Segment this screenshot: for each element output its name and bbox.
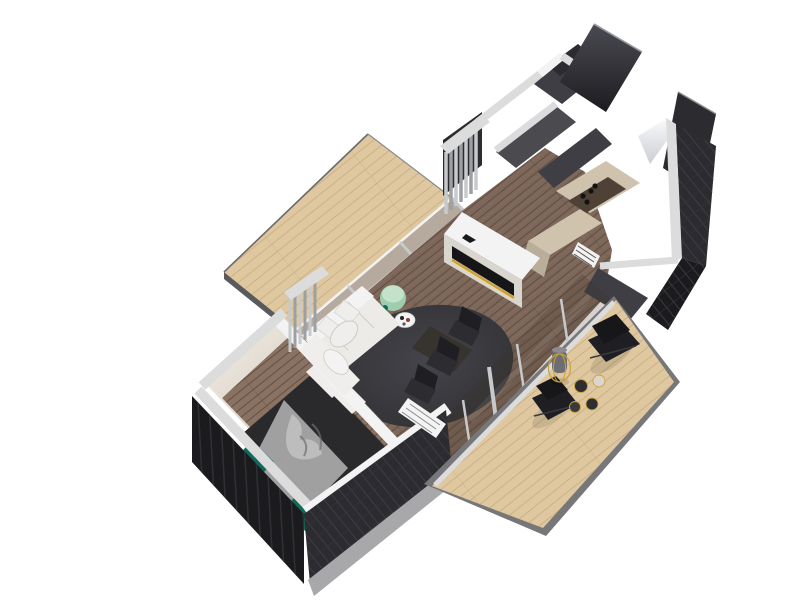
side-table <box>593 375 605 387</box>
wall-top-band <box>600 260 678 266</box>
wall-top-band <box>478 74 540 122</box>
floorplan-render: Isometric 3D render of a modular one-bed… <box>0 0 800 600</box>
side-table <box>570 402 581 413</box>
side-table <box>575 380 588 393</box>
burner <box>584 199 589 204</box>
wall-fin-a <box>560 24 642 112</box>
floorplan-svg: Isometric 3D render of a modular one-bed… <box>0 0 800 600</box>
side-table <box>586 398 598 410</box>
exterior-wall-right-grid <box>676 124 716 266</box>
burner <box>592 183 597 188</box>
burner <box>580 193 585 198</box>
burner <box>588 188 593 193</box>
exterior-wall-right-lower-grid <box>646 258 706 330</box>
side-table-mint <box>380 285 406 311</box>
